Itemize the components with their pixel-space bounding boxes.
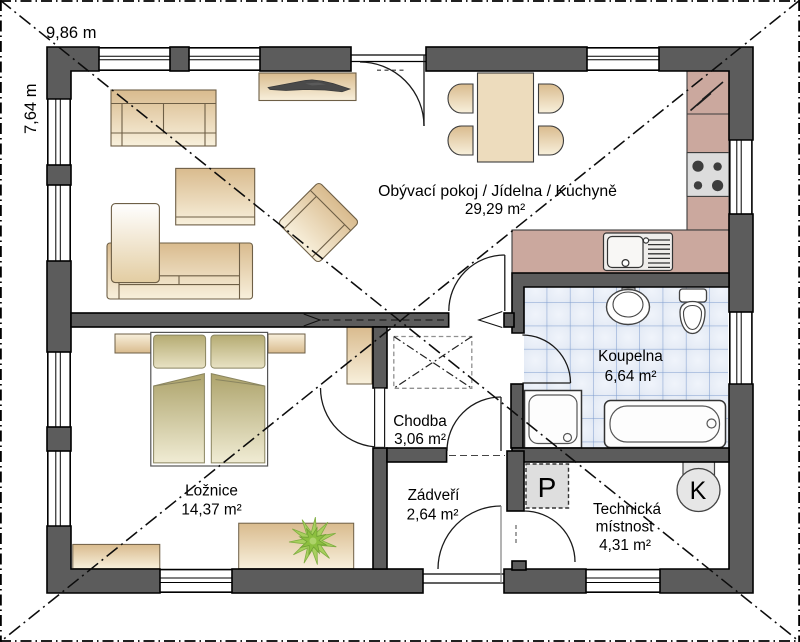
svg-text:Zádveří: Zádveří: [408, 487, 461, 504]
svg-text:7,64 m: 7,64 m: [22, 84, 40, 134]
svg-text:Obývací pokoj / Jídelna / Kuch: Obývací pokoj / Jídelna / Kuchyně: [378, 183, 617, 200]
svg-text:9,86 m: 9,86 m: [46, 24, 96, 42]
svg-text:Koupelna: Koupelna: [598, 348, 663, 365]
svg-text:4,31 m²: 4,31 m²: [599, 537, 651, 554]
svg-text:P: P: [538, 472, 557, 503]
svg-text:2,64 m²: 2,64 m²: [407, 507, 459, 524]
svg-text:14,37 m²: 14,37 m²: [181, 502, 241, 519]
svg-text:3,06 m²: 3,06 m²: [394, 431, 446, 448]
svg-text:Chodba: Chodba: [393, 413, 447, 430]
svg-text:6,64 m²: 6,64 m²: [605, 368, 657, 385]
svg-text:místnost: místnost: [596, 519, 655, 536]
svg-text:29,29 m²: 29,29 m²: [465, 201, 525, 218]
svg-text:Ložnice: Ložnice: [185, 483, 238, 500]
svg-text:K: K: [690, 477, 707, 505]
